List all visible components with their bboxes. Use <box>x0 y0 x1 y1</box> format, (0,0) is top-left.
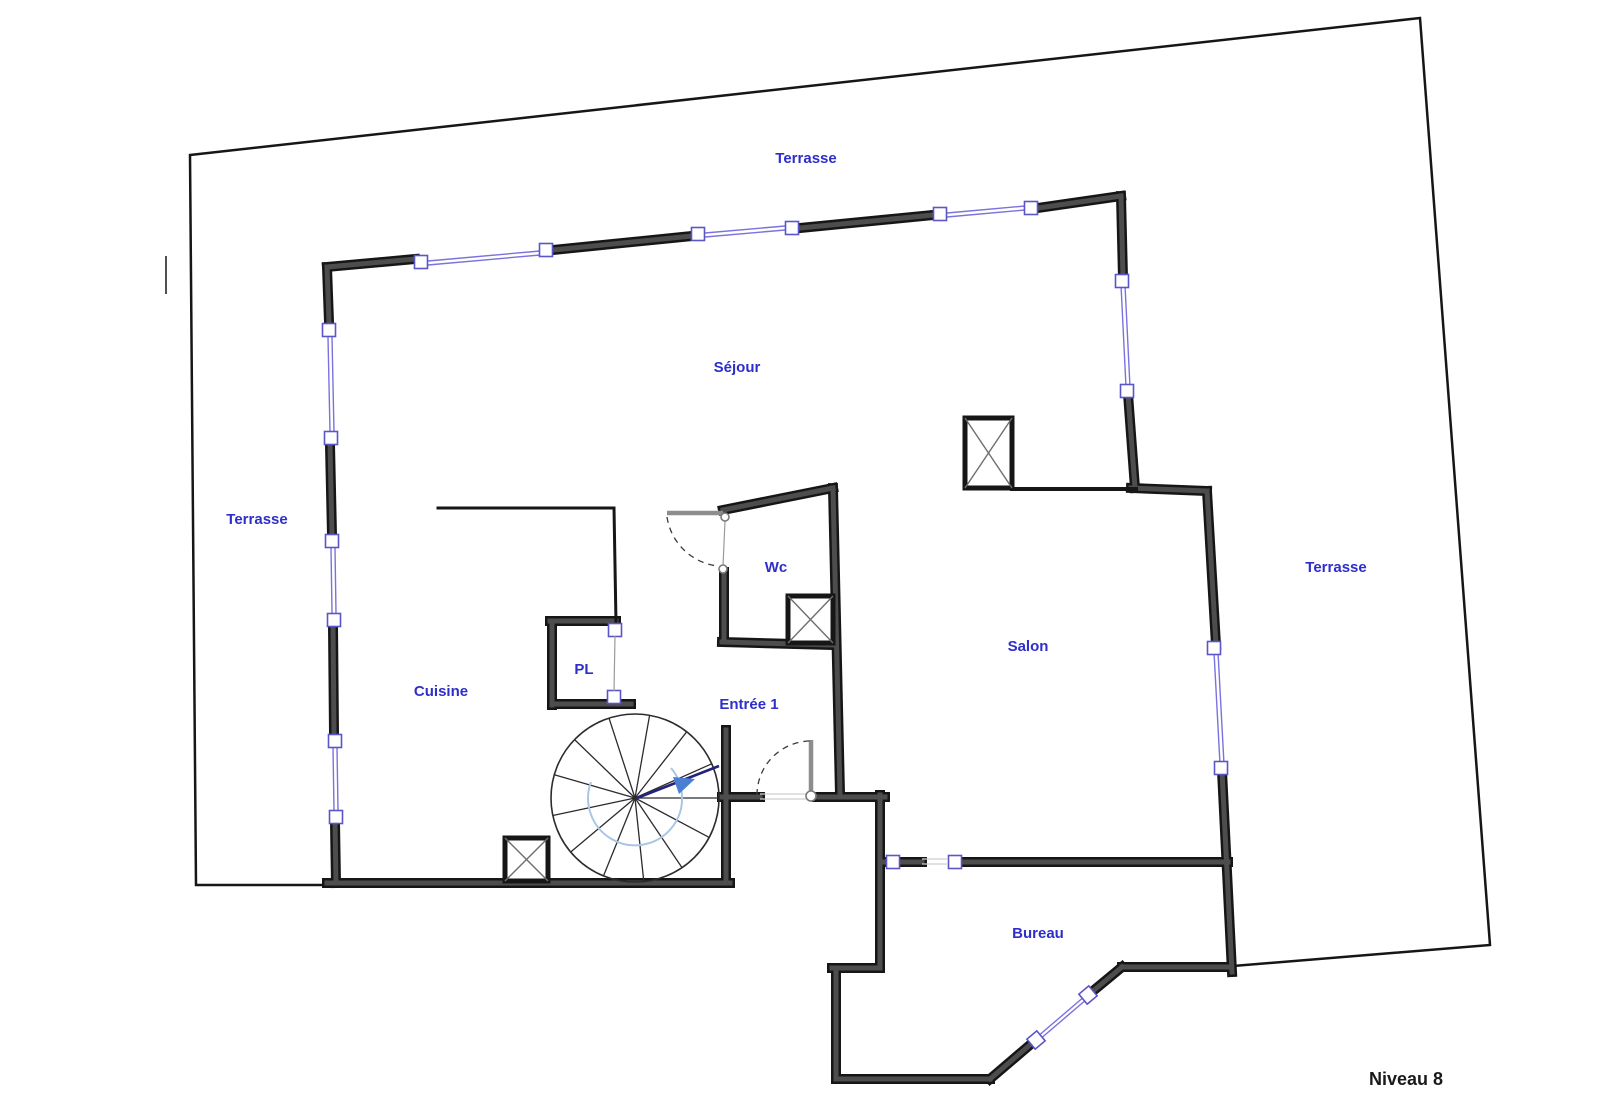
label-wc: Wc <box>765 559 788 576</box>
window-mullion <box>1025 202 1038 215</box>
stair-tread <box>635 798 682 868</box>
window-glazing-lines <box>328 206 1224 1046</box>
stair-tread <box>635 764 712 798</box>
window-mullion <box>328 614 341 627</box>
window-mullion <box>1121 385 1134 398</box>
entree-door-hinge <box>806 791 816 801</box>
kitchen-counter-line <box>438 508 616 623</box>
shaft-box-salon <box>965 418 1012 488</box>
entree-door-swing-arc <box>757 741 811 795</box>
window-mullion <box>786 222 799 235</box>
floor-plan-canvas: Terrasse Séjour Terrasse Terrasse Wc Sal… <box>0 0 1600 1117</box>
wc-door-swing-arc <box>667 517 718 566</box>
window-mullion <box>608 691 621 704</box>
window-mullion <box>330 811 343 824</box>
stair-rotation-arc <box>588 768 682 845</box>
window-mullions <box>323 202 1228 1050</box>
wc-door-latch <box>719 565 727 573</box>
apartment-walls <box>327 196 1232 1079</box>
wc-door-hinge <box>721 513 729 521</box>
window-mullion <box>326 535 339 548</box>
label-terrasse-right: Terrasse <box>1305 559 1366 576</box>
stair-tread <box>553 798 635 816</box>
spiral-staircase <box>551 714 719 882</box>
pl-door-line <box>614 636 615 691</box>
shaft-box-wc <box>788 596 833 643</box>
stair-tread <box>635 798 709 837</box>
label-entree: Entrée 1 <box>719 696 778 713</box>
window-mullion <box>415 256 428 269</box>
stair-tread <box>635 715 650 798</box>
stair-tread <box>635 798 644 882</box>
window-mullion <box>1215 762 1228 775</box>
window-mullion <box>949 856 962 869</box>
label-sejour: Séjour <box>714 359 761 376</box>
label-bureau: Bureau <box>1012 925 1064 942</box>
window-mullion <box>1208 642 1221 655</box>
walls-edge-layer <box>327 196 1232 1079</box>
shafts <box>505 418 1012 881</box>
window-mullion <box>325 432 338 445</box>
window-mullion <box>609 624 622 637</box>
stair-direction-arrow <box>673 777 695 794</box>
window-mullion <box>887 856 900 869</box>
windows <box>323 202 1228 1050</box>
walls-core-layer <box>327 196 1232 1079</box>
shaft-box-cuisine <box>505 838 548 881</box>
label-terrasse-top: Terrasse <box>775 150 836 167</box>
window-mullion <box>540 244 553 257</box>
stair-treads <box>553 715 719 881</box>
floor-plan: Terrasse Séjour Terrasse Terrasse Wc Sal… <box>0 0 1600 1117</box>
window-mullion <box>323 324 336 337</box>
label-terrasse-left: Terrasse <box>226 511 287 528</box>
window-mullion <box>692 228 705 241</box>
label-pl: PL <box>574 661 593 678</box>
window-mullion <box>934 208 947 221</box>
terrace-boundary-line <box>190 18 1490 966</box>
wc-door-frame-line <box>723 521 725 566</box>
label-salon: Salon <box>1008 638 1049 655</box>
window-mullion <box>329 735 342 748</box>
window-mullion <box>1116 275 1129 288</box>
label-cuisine: Cuisine <box>414 683 468 700</box>
label-level: Niveau 8 <box>1369 1069 1443 1089</box>
